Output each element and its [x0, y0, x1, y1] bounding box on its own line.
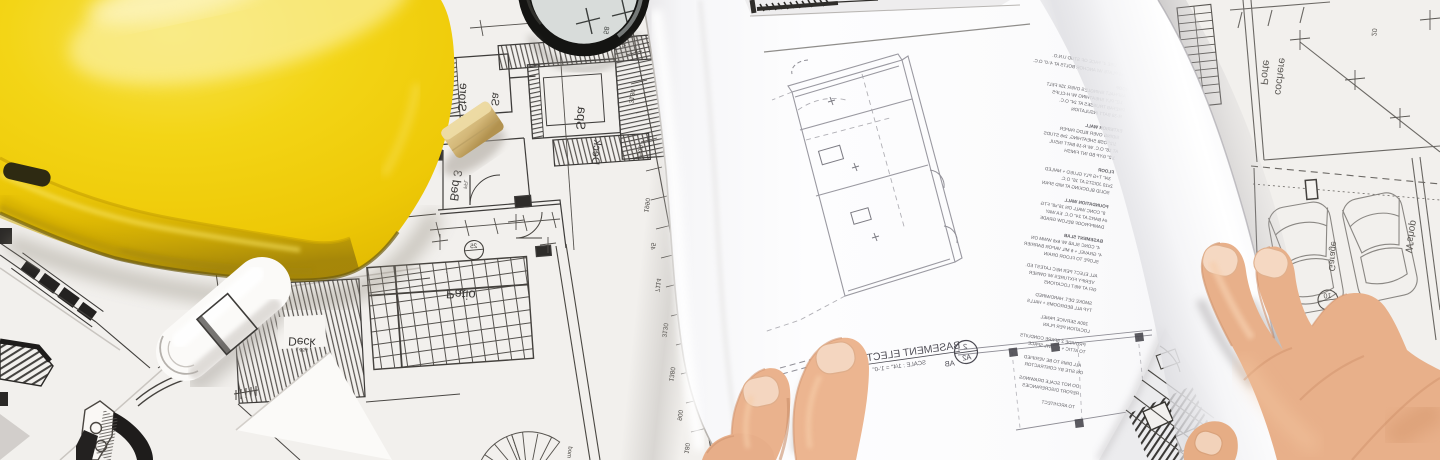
svg-text:1464: 1464: [296, 346, 309, 353]
svg-text:AB: AB: [944, 358, 955, 368]
svg-text:Spa: Spa: [573, 105, 590, 130]
svg-text:20: 20: [1370, 28, 1378, 36]
svg-text:180: 180: [682, 442, 690, 454]
svg-text:FFL: FFL: [461, 179, 468, 189]
svg-text:10: 10: [1323, 293, 1332, 301]
svg-text:25: 25: [469, 243, 477, 251]
svg-text:58: 58: [601, 26, 609, 35]
svg-text:Sa: Sa: [488, 91, 502, 107]
svg-text:Patio: Patio: [446, 286, 476, 303]
svg-text:Store: Store: [455, 82, 471, 112]
svg-text:A2: A2: [962, 352, 972, 362]
